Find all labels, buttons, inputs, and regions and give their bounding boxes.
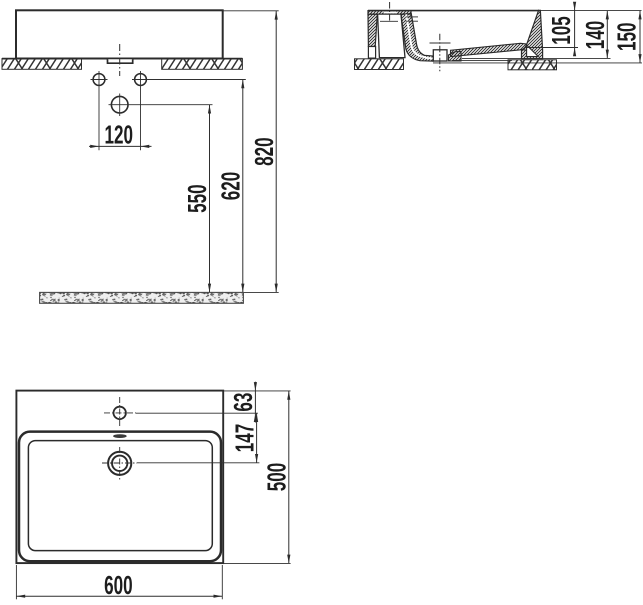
svg-text:150: 150: [612, 22, 641, 50]
svg-text:140: 140: [581, 21, 610, 49]
svg-text:120: 120: [105, 120, 133, 149]
svg-text:820: 820: [249, 137, 278, 165]
svg-text:500: 500: [262, 463, 291, 491]
svg-text:63: 63: [229, 393, 258, 412]
svg-text:147: 147: [230, 424, 259, 452]
svg-text:600: 600: [104, 570, 132, 599]
svg-text:550: 550: [183, 184, 212, 212]
svg-text:105: 105: [546, 16, 575, 44]
svg-text:620: 620: [216, 172, 245, 200]
